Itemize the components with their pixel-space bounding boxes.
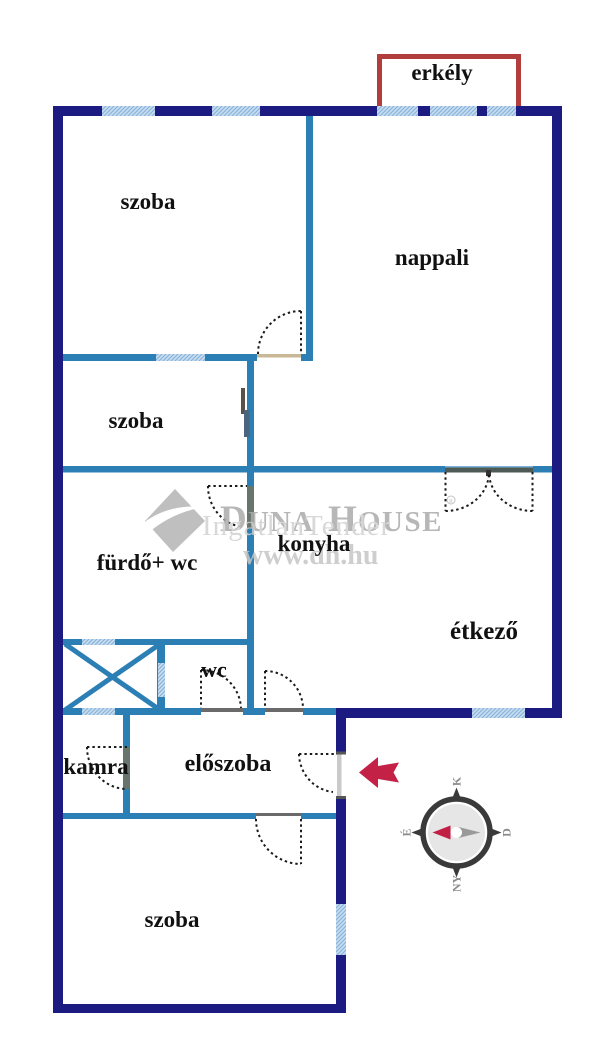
svg-text:erkély: erkély	[411, 60, 473, 85]
svg-text:É: É	[400, 828, 414, 836]
svg-text:wc: wc	[201, 657, 227, 682]
svg-text:előszoba: előszoba	[185, 751, 272, 777]
svg-text:D: D	[500, 828, 514, 837]
svg-text:R: R	[449, 499, 453, 505]
svg-text:étkező: étkező	[450, 618, 518, 645]
svg-text:nappali: nappali	[395, 245, 470, 270]
svg-text:fürdő+ wc: fürdő+ wc	[97, 550, 198, 575]
svg-text:kamra: kamra	[63, 754, 129, 779]
svg-text:konyha: konyha	[278, 531, 351, 556]
svg-text:NY: NY	[450, 875, 464, 893]
svg-text:K: K	[450, 776, 464, 786]
svg-text:szoba: szoba	[121, 189, 176, 214]
svg-text:szoba: szoba	[145, 907, 200, 932]
svg-text:szoba: szoba	[109, 408, 164, 433]
